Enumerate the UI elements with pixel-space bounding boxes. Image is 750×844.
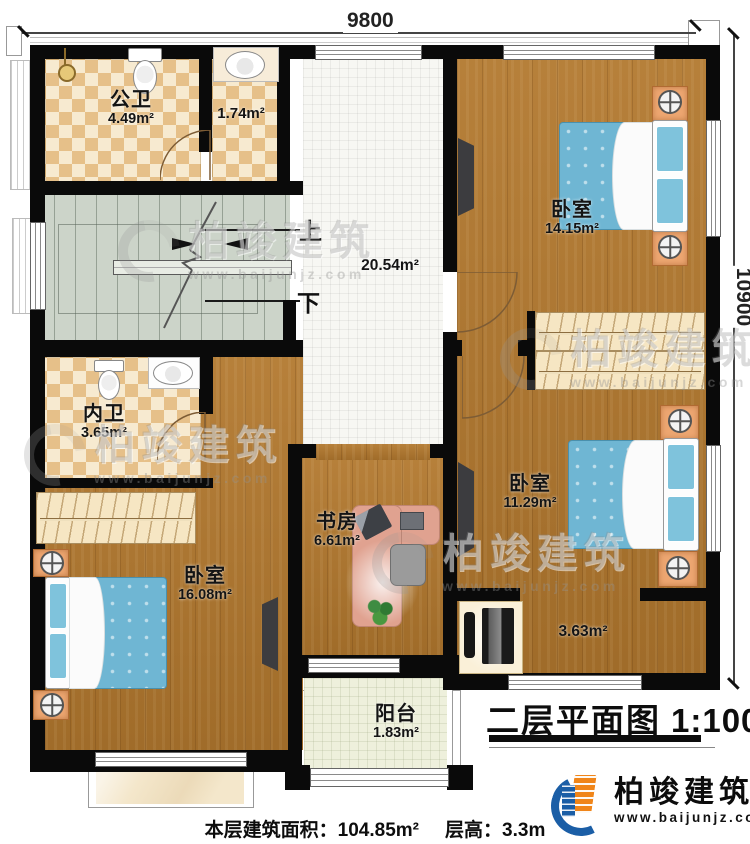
label-bedroom-top-right: 卧室 14.15m² — [531, 200, 613, 237]
pc-tower-icon — [400, 512, 424, 530]
pillow — [49, 633, 67, 679]
window-right-bedroom-mid — [706, 445, 721, 552]
pillow — [49, 583, 67, 629]
stairs-up-label: 上 — [299, 212, 322, 246]
toilet-private — [98, 370, 120, 400]
room-area: 20.54m² — [352, 258, 428, 275]
balcony-post-right — [447, 765, 473, 790]
room-name: 阳台 — [353, 704, 439, 726]
stairs-break-arrows — [138, 200, 258, 340]
bay-window — [95, 752, 247, 767]
wall-privatebath-bottom — [33, 478, 213, 488]
label-bedroom-right: 卧室 11.29m² — [487, 474, 573, 511]
pillow — [656, 178, 684, 224]
window-bottom-corridor — [508, 675, 642, 690]
floor-area-value: 104.85m² — [338, 820, 419, 841]
room-name: 公卫 — [95, 90, 167, 112]
wall-balcony-left — [288, 678, 302, 768]
floorplan-page: { "dimensions": { "top": "9800", "right"… — [0, 0, 750, 843]
room-area: 3.65m² — [68, 426, 140, 442]
lamp-icon — [666, 556, 690, 580]
sink-small-bath — [225, 51, 265, 79]
wall-hall-right-lower — [443, 332, 457, 673]
window-balcony-railing — [310, 768, 449, 787]
window-left-stairs — [30, 222, 46, 310]
corner-marker-top-left — [6, 26, 22, 56]
room-name: 内卫 — [68, 404, 140, 426]
wall-baths-bottom — [30, 181, 303, 195]
hall-floor — [303, 59, 443, 444]
exterior-sill-left-top — [10, 60, 32, 190]
logo-building-blue-icon — [562, 785, 575, 817]
pillow — [667, 444, 695, 490]
room-area: 1.74m² — [205, 106, 277, 122]
room-area: 16.08m² — [162, 588, 248, 604]
lamp-icon — [668, 409, 692, 433]
door-top-bedroom — [457, 272, 518, 333]
closet-mid-bedroom — [535, 351, 705, 390]
window-study-balcony — [308, 658, 400, 673]
eave-line-top — [30, 37, 720, 38]
label-corridor-area: 3.63m² — [543, 624, 623, 641]
lamp-icon — [658, 235, 682, 259]
plant-icon — [366, 598, 394, 626]
wall-midbedroom-south-a — [457, 588, 520, 601]
balcony-side-right — [452, 690, 461, 767]
desk-chair — [390, 544, 426, 586]
balcony-post-left — [285, 765, 310, 790]
eave-line-top-2 — [30, 42, 720, 43]
wall-closet-stub — [527, 311, 535, 390]
door-private-bath — [157, 412, 206, 461]
lamp-icon — [40, 693, 64, 717]
wardrobe-left-bedroom — [36, 492, 196, 544]
closet-top-bedroom — [535, 312, 705, 351]
label-balcony: 阳台 1.83m² — [353, 704, 439, 741]
blanket-left-bedroom — [69, 577, 105, 689]
tv-top-bedroom — [458, 138, 474, 216]
drawing-scale: 1:100 — [671, 702, 750, 739]
room-area: 4.49m² — [95, 112, 167, 128]
pillow — [667, 496, 695, 542]
drawing-title-text: 二层平面图 — [486, 702, 661, 739]
wall-stairs-stub — [283, 300, 296, 345]
lamp-icon — [658, 90, 682, 114]
label-public-bath: 公卫 4.49m² — [95, 90, 167, 127]
exterior-sill-left-stairs — [12, 218, 32, 314]
wall-study-left — [288, 444, 302, 655]
floor-stats: 本层建筑面积：104.85m²层高：3.3m — [150, 815, 600, 842]
title-underline-thick — [489, 735, 701, 742]
blanket-top-bedroom — [612, 122, 654, 230]
stairs-down-label: 下 — [297, 284, 320, 318]
window-right-bedroom-top — [706, 120, 721, 237]
wall-left — [30, 45, 45, 772]
wall-stairs-bottom — [30, 340, 303, 357]
room-area: 6.61m² — [298, 534, 376, 550]
tv-left-bedroom — [262, 597, 278, 671]
lamp-icon — [40, 551, 64, 575]
room-name: 卧室 — [487, 474, 573, 496]
label-private-bath: 内卫 3.65m² — [68, 404, 140, 441]
window-top-hall — [315, 45, 422, 60]
wall-midbedroom-south-b — [640, 588, 706, 601]
room-area: 14.15m² — [531, 222, 613, 238]
door-public-bath — [160, 130, 211, 181]
label-small-bath: 1.74m² — [205, 106, 277, 122]
room-area: 3.63m² — [543, 624, 623, 641]
blanket-mid-bedroom — [622, 440, 666, 549]
study-doorway-floor — [316, 444, 430, 460]
dimension-right-value: 10900 — [731, 266, 750, 328]
window-top-bedroom — [503, 45, 655, 60]
brand-name: 柏竣建筑 — [614, 777, 750, 809]
floor-height-value: 3.3m — [502, 820, 545, 841]
dimension-line-right — [733, 35, 735, 685]
door-mid-bedroom — [462, 356, 525, 419]
dimension-top-value: 9800 — [343, 9, 398, 33]
room-area: 11.29m² — [487, 496, 573, 512]
wall-hall-right-upper — [443, 59, 457, 272]
pillow — [656, 126, 684, 172]
room-area: 1.83m² — [353, 726, 439, 742]
label-hall-area: 20.54m² — [352, 258, 428, 275]
wall-bedrooms-divider-a — [443, 340, 462, 356]
wall-hall-bottom-right — [430, 444, 457, 458]
floor-height-label: 层高： — [445, 820, 502, 841]
label-study: 书房 6.61m² — [298, 512, 376, 549]
sink-private-bath — [153, 361, 193, 385]
label-bedroom-left: 卧室 16.08m² — [162, 566, 248, 603]
brand-url: www.baijunjz.com — [614, 810, 750, 825]
floor-area-label: 本层建筑面积： — [205, 820, 338, 841]
wall-privatebath-right — [199, 357, 213, 414]
floor-plan: 公卫 4.49m² 1.74m² 卧室 14.15m² 20.54m² 上 下 … — [0, 0, 750, 843]
speaker-icon — [464, 612, 475, 658]
room-name: 书房 — [298, 512, 376, 534]
tv-cabinet-icon — [482, 608, 514, 664]
shower-head-icon — [58, 64, 76, 82]
room-name: 卧室 — [162, 566, 248, 588]
room-name: 卧室 — [531, 200, 613, 222]
tv-mid-bedroom — [458, 462, 474, 557]
title-underline-thin — [489, 747, 715, 748]
